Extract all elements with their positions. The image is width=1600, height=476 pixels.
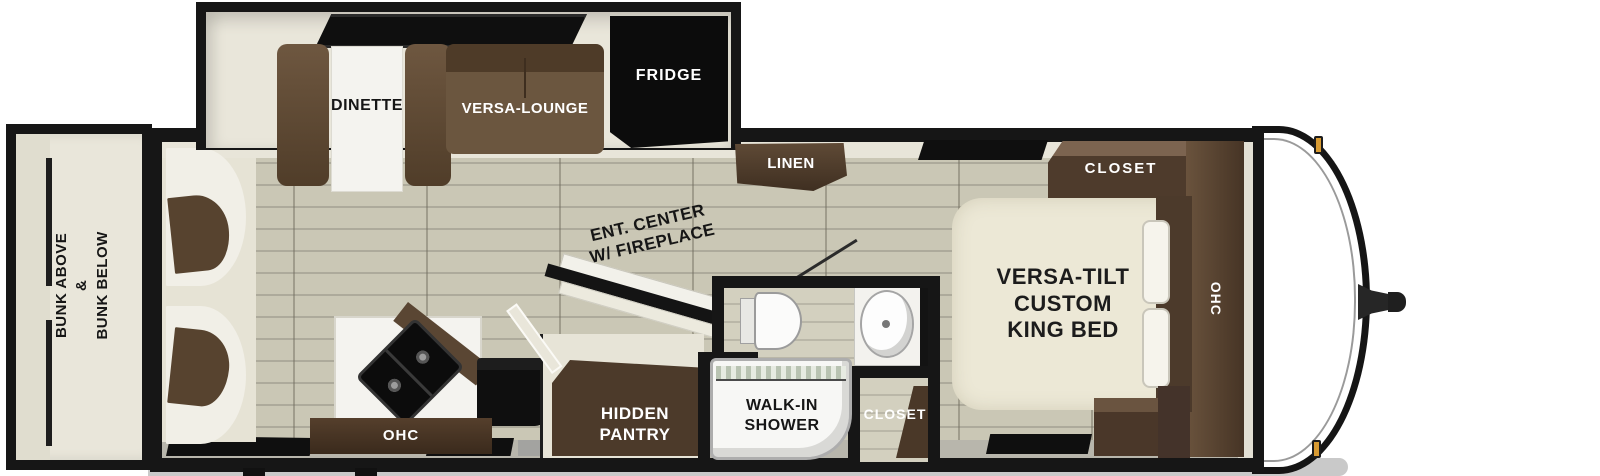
pantry-label: HIDDEN PANTRY xyxy=(600,403,671,446)
dinette-seat-left xyxy=(277,44,329,186)
hitch-tongue xyxy=(1358,284,1392,320)
bedroom-ohc-cabinet: OHC xyxy=(1186,141,1244,457)
sink-drain-top xyxy=(414,348,432,366)
stabilizer-jack-left xyxy=(243,468,265,476)
bunk-label: BUNK ABOVE & BUNK BELOW xyxy=(52,223,113,348)
bath-closet-label: CLOSET xyxy=(854,406,936,424)
bath-wall-top xyxy=(712,276,940,288)
shower-label: WALK-IN SHOWER xyxy=(745,396,820,436)
bunk-label-box: BUNK ABOVE & BUNK BELOW xyxy=(20,170,145,400)
bath-sink-drain xyxy=(882,320,890,328)
versa-lounge-cushion-split xyxy=(524,58,526,98)
hitch-coupler xyxy=(1388,292,1406,312)
nightstand xyxy=(1094,398,1168,456)
pantry-label-box: HIDDEN PANTRY xyxy=(580,398,690,450)
bedroom-window-top xyxy=(918,140,1048,160)
kitchen-ohc-label: OHC xyxy=(383,427,419,446)
dinette-seat-right xyxy=(405,44,451,186)
bed-corner-cabinet xyxy=(1158,386,1190,458)
king-bed-label-box: VERSA-TILT CUSTOM KING BED xyxy=(957,198,1169,410)
stabilizer-jack-right xyxy=(355,468,377,476)
marker-light-top xyxy=(1314,136,1323,154)
bath-wall-closet-top xyxy=(848,366,940,378)
bedroom-closet: CLOSET xyxy=(1048,141,1194,198)
bedroom-ohc-label: OHC xyxy=(1206,282,1224,316)
sink-drain-bottom xyxy=(385,376,403,394)
rv-floorplan: DINETTE VERSA-LOUNGE FRIDGE BUNK ABOVE &… xyxy=(0,0,1600,476)
kitchen-range xyxy=(477,358,549,426)
bedroom-window-bottom xyxy=(986,434,1092,454)
kitchen-ohc-cabinet: OHC xyxy=(310,418,492,454)
fridge-label: FRIDGE xyxy=(610,66,728,86)
dinette-label: DINETTE xyxy=(326,96,408,116)
bath-wall-left-lower xyxy=(698,352,710,460)
marker-light-bottom xyxy=(1312,440,1321,458)
bedroom-closet-label: CLOSET xyxy=(1085,160,1158,179)
slide-window xyxy=(315,14,587,48)
shower-label-box: WALK-IN SHOWER xyxy=(714,388,850,444)
linen-label: LINEN xyxy=(767,155,815,174)
versa-lounge-label: VERSA-LOUNGE xyxy=(446,100,604,119)
shower-curtain xyxy=(716,366,846,381)
dinette-table xyxy=(331,46,403,192)
king-bed-label: VERSA-TILT CUSTOM KING BED xyxy=(997,264,1130,344)
